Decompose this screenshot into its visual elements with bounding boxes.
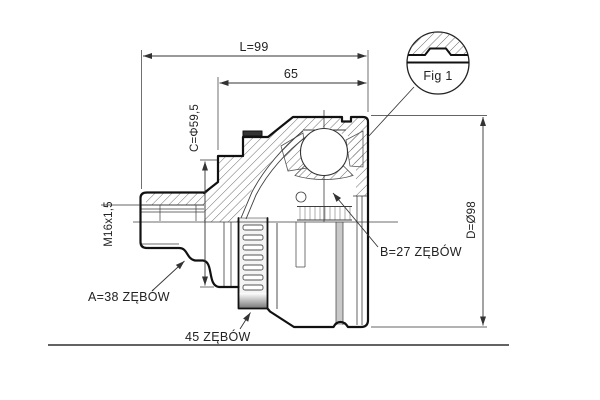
housing-groove-stripe [336,222,343,325]
dim-inner-length-text: 65 [284,67,298,81]
abs-ring-shading [239,293,267,308]
abs-ring-label: 45 ZĘBÓW [185,329,251,344]
fig1-label: Fig 1 [423,69,452,83]
drawing-canvas: Fig 1 L=99 65 C=Φ59,5 M16x1,5 D=Ø98 A=38… [0,0,600,400]
boot-clamp-block [243,131,262,136]
abs-tone-ring [239,218,267,308]
abs-ring-slots [243,225,263,290]
flange-section-hatch [146,193,204,205]
dim-c-diameter-text: C=Φ59,5 [189,104,201,152]
spline-b-label: B=27 ZĘBÓW [380,244,462,259]
thread-spec-text: M16x1,5 [103,201,115,247]
dim-d-diameter-text: D=Ø98 [466,201,478,239]
spline-a-label: A=38 ZĘBÓW [88,289,170,304]
dim-total-length-text: L=99 [240,40,269,54]
bearing-ball [301,129,348,176]
cv-joint-technical-drawing: Fig 1 L=99 65 C=Φ59,5 M16x1,5 D=Ø98 A=38… [0,0,600,400]
